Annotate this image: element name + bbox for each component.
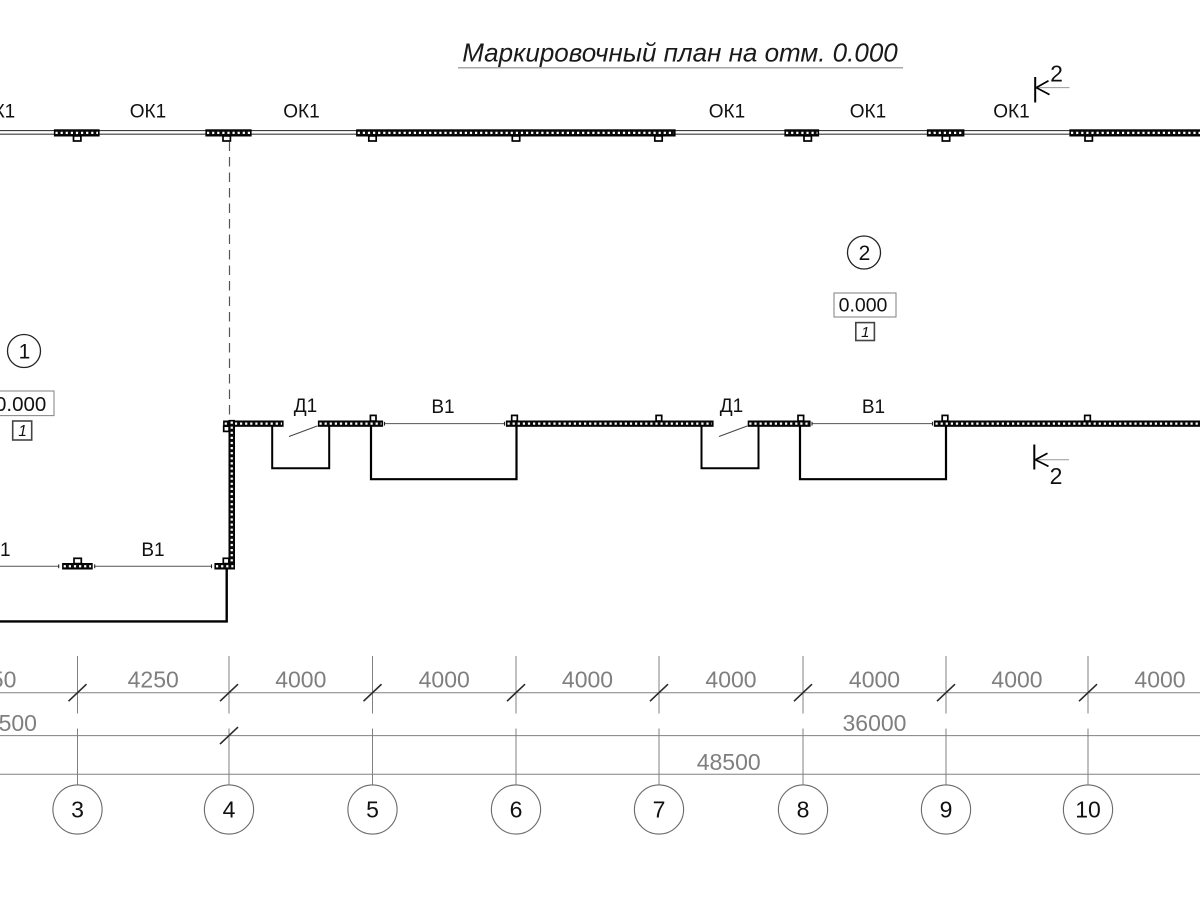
svg-text:48500: 48500: [697, 749, 761, 775]
svg-text:4000: 4000: [275, 667, 326, 693]
svg-text:3: 3: [71, 797, 84, 823]
svg-text:4000: 4000: [991, 667, 1042, 693]
svg-text:4000: 4000: [1134, 667, 1185, 693]
svg-text:2: 2: [1050, 61, 1063, 87]
svg-text:Маркировочный план на отм. 0.0: Маркировочный план на отм. 0.000: [462, 38, 898, 68]
svg-text:4: 4: [223, 797, 236, 823]
svg-text:ОК1: ОК1: [993, 102, 1029, 123]
svg-text:ОК1: ОК1: [130, 102, 166, 123]
svg-text:7: 7: [653, 797, 666, 823]
svg-text:В1: В1: [141, 540, 164, 561]
svg-text:4250: 4250: [0, 667, 16, 693]
svg-text:4000: 4000: [562, 667, 613, 693]
svg-text:ОК1: ОК1: [283, 102, 319, 123]
svg-text:4000: 4000: [705, 667, 756, 693]
svg-text:В1: В1: [431, 397, 454, 418]
svg-text:1: 1: [861, 324, 869, 341]
svg-text:Д1: Д1: [294, 396, 317, 417]
svg-text:0.000: 0.000: [839, 295, 888, 317]
svg-text:ОК1: ОК1: [850, 102, 886, 123]
svg-text:12500: 12500: [0, 710, 37, 736]
svg-text:8: 8: [797, 797, 810, 823]
svg-text:9: 9: [940, 797, 953, 823]
svg-text:В1: В1: [0, 540, 11, 561]
svg-text:2: 2: [1050, 463, 1063, 489]
svg-text:2: 2: [859, 242, 871, 265]
svg-text:36000: 36000: [843, 710, 907, 736]
svg-text:10: 10: [1075, 797, 1101, 823]
svg-text:4250: 4250: [128, 667, 179, 693]
svg-text:4000: 4000: [419, 667, 470, 693]
svg-text:0.000: 0.000: [0, 393, 46, 416]
svg-text:Д1: Д1: [720, 396, 743, 417]
svg-text:1: 1: [18, 423, 27, 440]
svg-text:6: 6: [510, 797, 523, 823]
svg-text:4000: 4000: [849, 667, 900, 693]
svg-text:1: 1: [19, 341, 31, 364]
svg-text:ОК1: ОК1: [0, 102, 15, 123]
svg-text:В1: В1: [862, 397, 885, 418]
svg-text:ОК1: ОК1: [709, 102, 745, 123]
svg-text:5: 5: [366, 797, 379, 823]
